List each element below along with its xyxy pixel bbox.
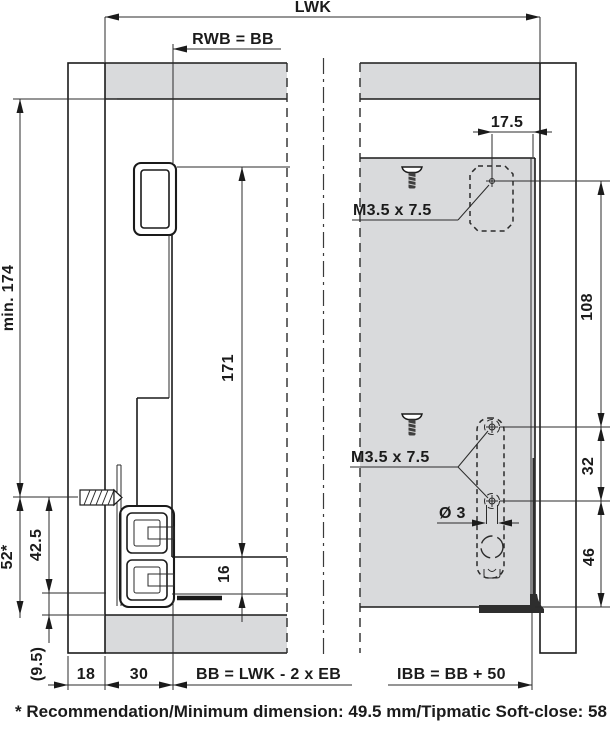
footer-note: * Recommendation/Minimum dimension: 49.5… <box>15 702 612 721</box>
cabinet-side-panel-left <box>68 63 105 653</box>
dim-171-label: 171 <box>220 354 237 382</box>
dim-46-label: 46 <box>581 548 598 566</box>
rwb-label: RWB = BB <box>192 31 274 48</box>
drawer-installation-diagram: M3.5 x 7.5 M3.5 x 7.5 Ø 3 LWK <box>0 0 612 730</box>
lwk-label: LWK <box>295 0 332 16</box>
left-section-view <box>68 63 287 653</box>
dimension-42-5: 42.5 <box>28 497 106 643</box>
screw-spec-mid-label: M3.5 x 7.5 <box>351 449 430 466</box>
fixing-screw-icon <box>80 490 122 505</box>
dimension-16: 16 <box>216 565 246 608</box>
dim-32-label: 32 <box>580 457 597 475</box>
dimension-lwk: LWK <box>105 0 540 62</box>
screw-spec-top-label: M3.5 x 7.5 <box>353 202 432 219</box>
dim-95-label: (9.5) <box>29 647 46 681</box>
dimension-min174: min. 174 <box>0 99 117 618</box>
railing-profile <box>134 163 176 235</box>
dim-18-label: 18 <box>77 666 95 683</box>
dimension-171: 171 <box>177 167 290 622</box>
technical-drawing-page: M3.5 x 7.5 M3.5 x 7.5 Ø 3 LWK <box>0 0 612 730</box>
dim-52-label: 52* <box>0 544 16 569</box>
dim-425-label: 42.5 <box>28 529 45 561</box>
drawer-rear-panel <box>360 158 535 607</box>
dim-108-label: 108 <box>579 293 596 321</box>
right-rear-view: M3.5 x 7.5 M3.5 x 7.5 Ø 3 <box>350 63 576 653</box>
dia3-label: Ø 3 <box>439 505 466 522</box>
dim-175-label: 17.5 <box>491 114 523 131</box>
drawer-slide-profile <box>120 506 174 607</box>
cabinet-top-panel-right <box>360 63 540 99</box>
min174-label: min. 174 <box>0 265 17 331</box>
cabinet-side-panel-right <box>540 63 576 653</box>
cabinet-bottom-panel <box>105 615 287 653</box>
bb-formula-label: BB = LWK - 2 x EB <box>196 666 341 683</box>
cabinet-top-panel <box>105 63 287 99</box>
ibb-formula-label: IBB = BB + 50 <box>397 666 506 683</box>
drawer-side-wall <box>137 235 172 557</box>
dim-30-label: 30 <box>130 666 148 683</box>
dim-16-label: 16 <box>216 565 233 583</box>
dimension-ibb: IBB = BB + 50 <box>388 612 532 690</box>
